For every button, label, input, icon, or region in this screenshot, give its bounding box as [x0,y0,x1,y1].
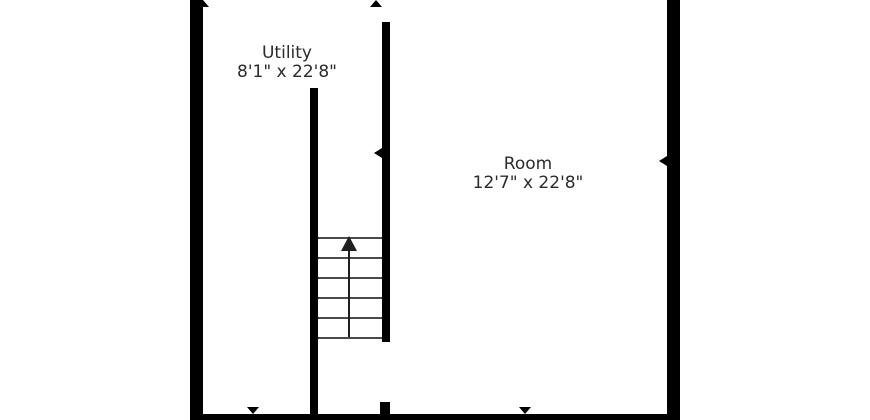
stair-tread [318,317,382,319]
stair-tread [318,297,382,299]
room-dimensions: 8'1" x 22'8" [192,63,382,82]
room-name: Room [504,154,552,174]
stair-tread [318,277,382,279]
door-marker-bottom-utility-icon [247,407,259,414]
door-marker-right-wall-icon [659,156,667,166]
wall-stairs-stub [380,402,390,415]
wall-utility-divider [310,88,318,420]
room-label-utility: Utility 8'1" x 22'8" [192,44,382,82]
floor-plan: Utility 8'1" x 22'8" Room 12'7" x 22'8" [0,0,870,420]
stair-tread [318,337,382,339]
door-marker-top-left-icon [197,0,209,7]
room-dimensions: 12'7" x 22'8" [433,174,623,193]
wall-right [667,0,680,420]
door-marker-top-center-icon [370,0,382,7]
staircase [318,237,382,341]
room-name: Utility [262,43,312,63]
stairs-up-arrow-stem [348,250,350,337]
up-arrow-icon [341,236,357,251]
door-marker-bottom-room-icon [519,407,531,414]
wall-stairs-right [382,22,390,342]
door-marker-stairs-wall-icon [374,148,382,158]
room-label-room: Room 12'7" x 22'8" [433,155,623,193]
stair-tread [318,257,382,259]
wall-bottom [190,414,680,420]
